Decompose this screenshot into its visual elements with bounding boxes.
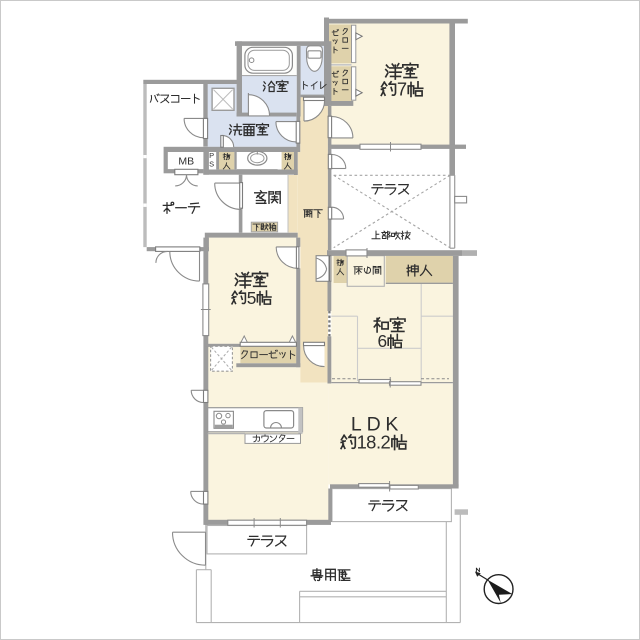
svg-text:8: 8 — [366, 432, 376, 453]
svg-text:2: 2 — [380, 432, 390, 453]
svg-text:P: P — [209, 151, 214, 160]
svg-text:6: 6 — [377, 331, 387, 351]
svg-text:MB: MB — [178, 156, 194, 168]
svg-text:5: 5 — [247, 288, 257, 308]
svg-text:7: 7 — [397, 78, 407, 99]
svg-text:S: S — [209, 160, 214, 169]
